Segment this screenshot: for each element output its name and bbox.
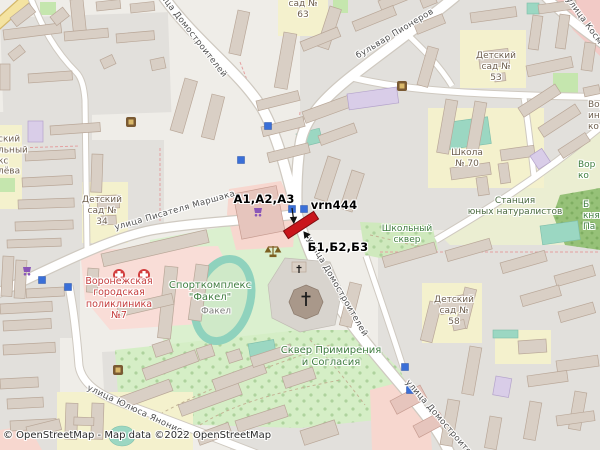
map-graphics <box>0 0 600 450</box>
map-canvas[interactable]: улица Домостроителей улица Домостроителе… <box>0 0 600 450</box>
church <box>268 258 342 332</box>
